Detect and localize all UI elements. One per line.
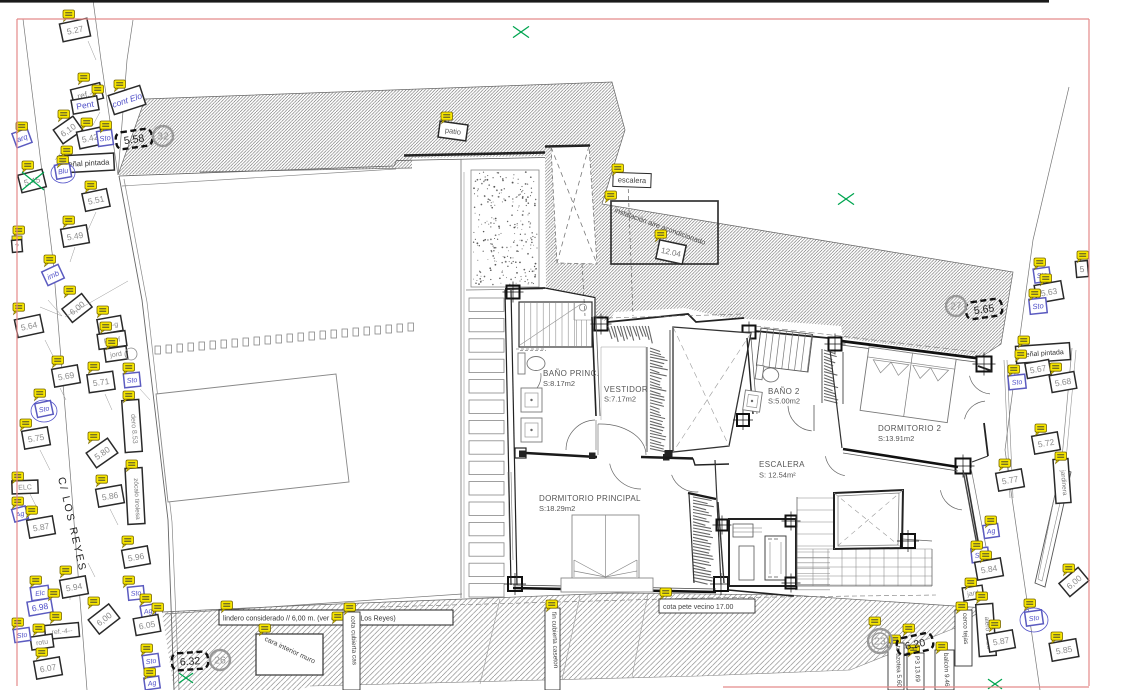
svg-text:27: 27 [950,301,962,313]
svg-text:26: 26 [214,655,226,667]
svg-text:S:5.00m2: S:5.00m2 [768,397,800,406]
svg-text:escalera: escalera [618,175,647,185]
svg-text:Sto: Sto [145,658,156,666]
svg-text:cota pete vecino 17.00: cota pete vecino 17.00 [663,604,734,611]
svg-text:Sto: Sto [1012,379,1023,387]
svg-text:Ag: Ag [146,680,157,688]
svg-text:cerco tejas: cerco tejas [961,613,969,645]
svg-text:VESTIDOR: VESTIDOR [604,385,648,394]
svg-text:DORMITORIO 2: DORMITORIO 2 [878,424,941,433]
svg-text:Sto: Sto [99,133,111,143]
svg-text:32: 32 [157,131,169,143]
svg-text:Sto: Sto [16,632,27,640]
svg-text:S: 12.54m²: S: 12.54m² [759,471,796,480]
svg-text:Sto: Sto [127,377,138,385]
svg-text:ELC: ELC [18,484,32,491]
svg-text:Ag: Ag [985,528,996,536]
svg-text:BAÑO PRINC.: BAÑO PRINC. [543,369,599,378]
svg-text:Sto: Sto [1028,615,1039,623]
svg-text:S:13.91m2: S:13.91m2 [878,434,914,443]
svg-text:23: 23 [874,636,886,648]
svg-text:BAÑO 2: BAÑO 2 [768,387,800,396]
svg-text:lindero considerado // 6,00 m.: lindero considerado // 6,00 m. (ver cobi… [223,616,396,623]
svg-text:P3 13.69: P3 13.69 [913,656,921,683]
svg-text:S:18.29m2: S:18.29m2 [539,504,575,513]
svg-text:balcón 9.46: balcón 9.46 [942,653,950,687]
svg-text:S:7.17m2: S:7.17m2 [604,395,636,404]
svg-text:ESCALERA: ESCALERA [759,460,805,469]
svg-text:6.32: 6.32 [179,655,200,668]
svg-text:Elc: Elc [35,590,46,598]
svg-text:S:8.17m2: S:8.17m2 [543,379,575,388]
svg-text:DORMITORIO PRINCIPAL: DORMITORIO PRINCIPAL [539,494,641,503]
svg-text:Sto: Sto [1032,301,1044,311]
